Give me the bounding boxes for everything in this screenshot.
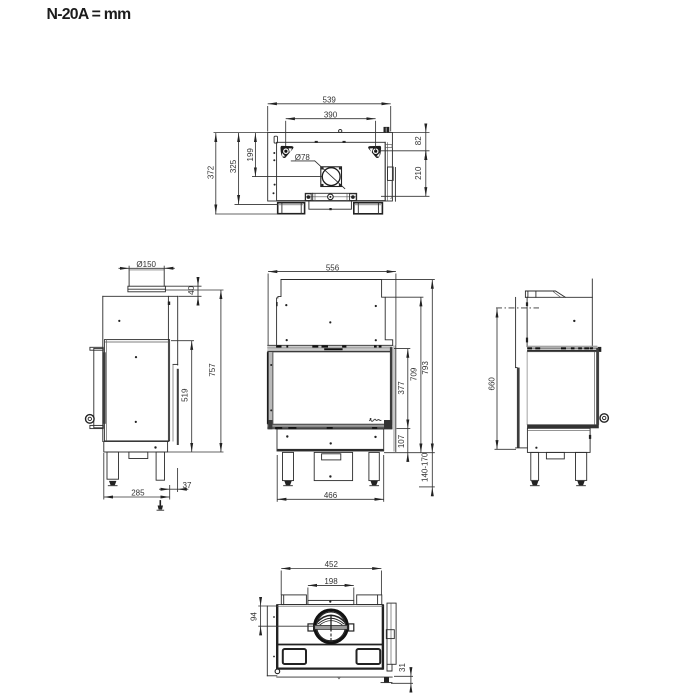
- svg-text:452: 452: [325, 560, 339, 569]
- svg-text:94: 94: [249, 612, 258, 621]
- svg-text:519: 519: [181, 388, 190, 402]
- svg-text:660: 660: [488, 377, 497, 391]
- svg-text:793: 793: [421, 361, 430, 375]
- svg-text:325: 325: [229, 159, 238, 173]
- svg-text:140-170: 140-170: [420, 452, 429, 482]
- svg-text:107: 107: [397, 434, 406, 448]
- svg-text:377: 377: [397, 381, 406, 395]
- svg-text:757: 757: [208, 363, 217, 377]
- svg-text:Ø150: Ø150: [136, 260, 156, 269]
- svg-text:31: 31: [398, 663, 407, 672]
- svg-text:372: 372: [206, 165, 215, 179]
- svg-text:466: 466: [324, 491, 338, 500]
- svg-text:Ø78: Ø78: [295, 153, 311, 162]
- svg-text:390: 390: [324, 110, 338, 119]
- svg-text:210: 210: [414, 166, 423, 180]
- svg-text:556: 556: [326, 263, 340, 272]
- svg-text:539: 539: [323, 96, 337, 105]
- svg-text:285: 285: [131, 489, 145, 498]
- svg-text:709: 709: [410, 367, 419, 381]
- svg-text:37: 37: [183, 481, 192, 490]
- svg-text:198: 198: [324, 577, 338, 586]
- svg-text:82: 82: [414, 136, 423, 145]
- svg-text:199: 199: [246, 148, 255, 162]
